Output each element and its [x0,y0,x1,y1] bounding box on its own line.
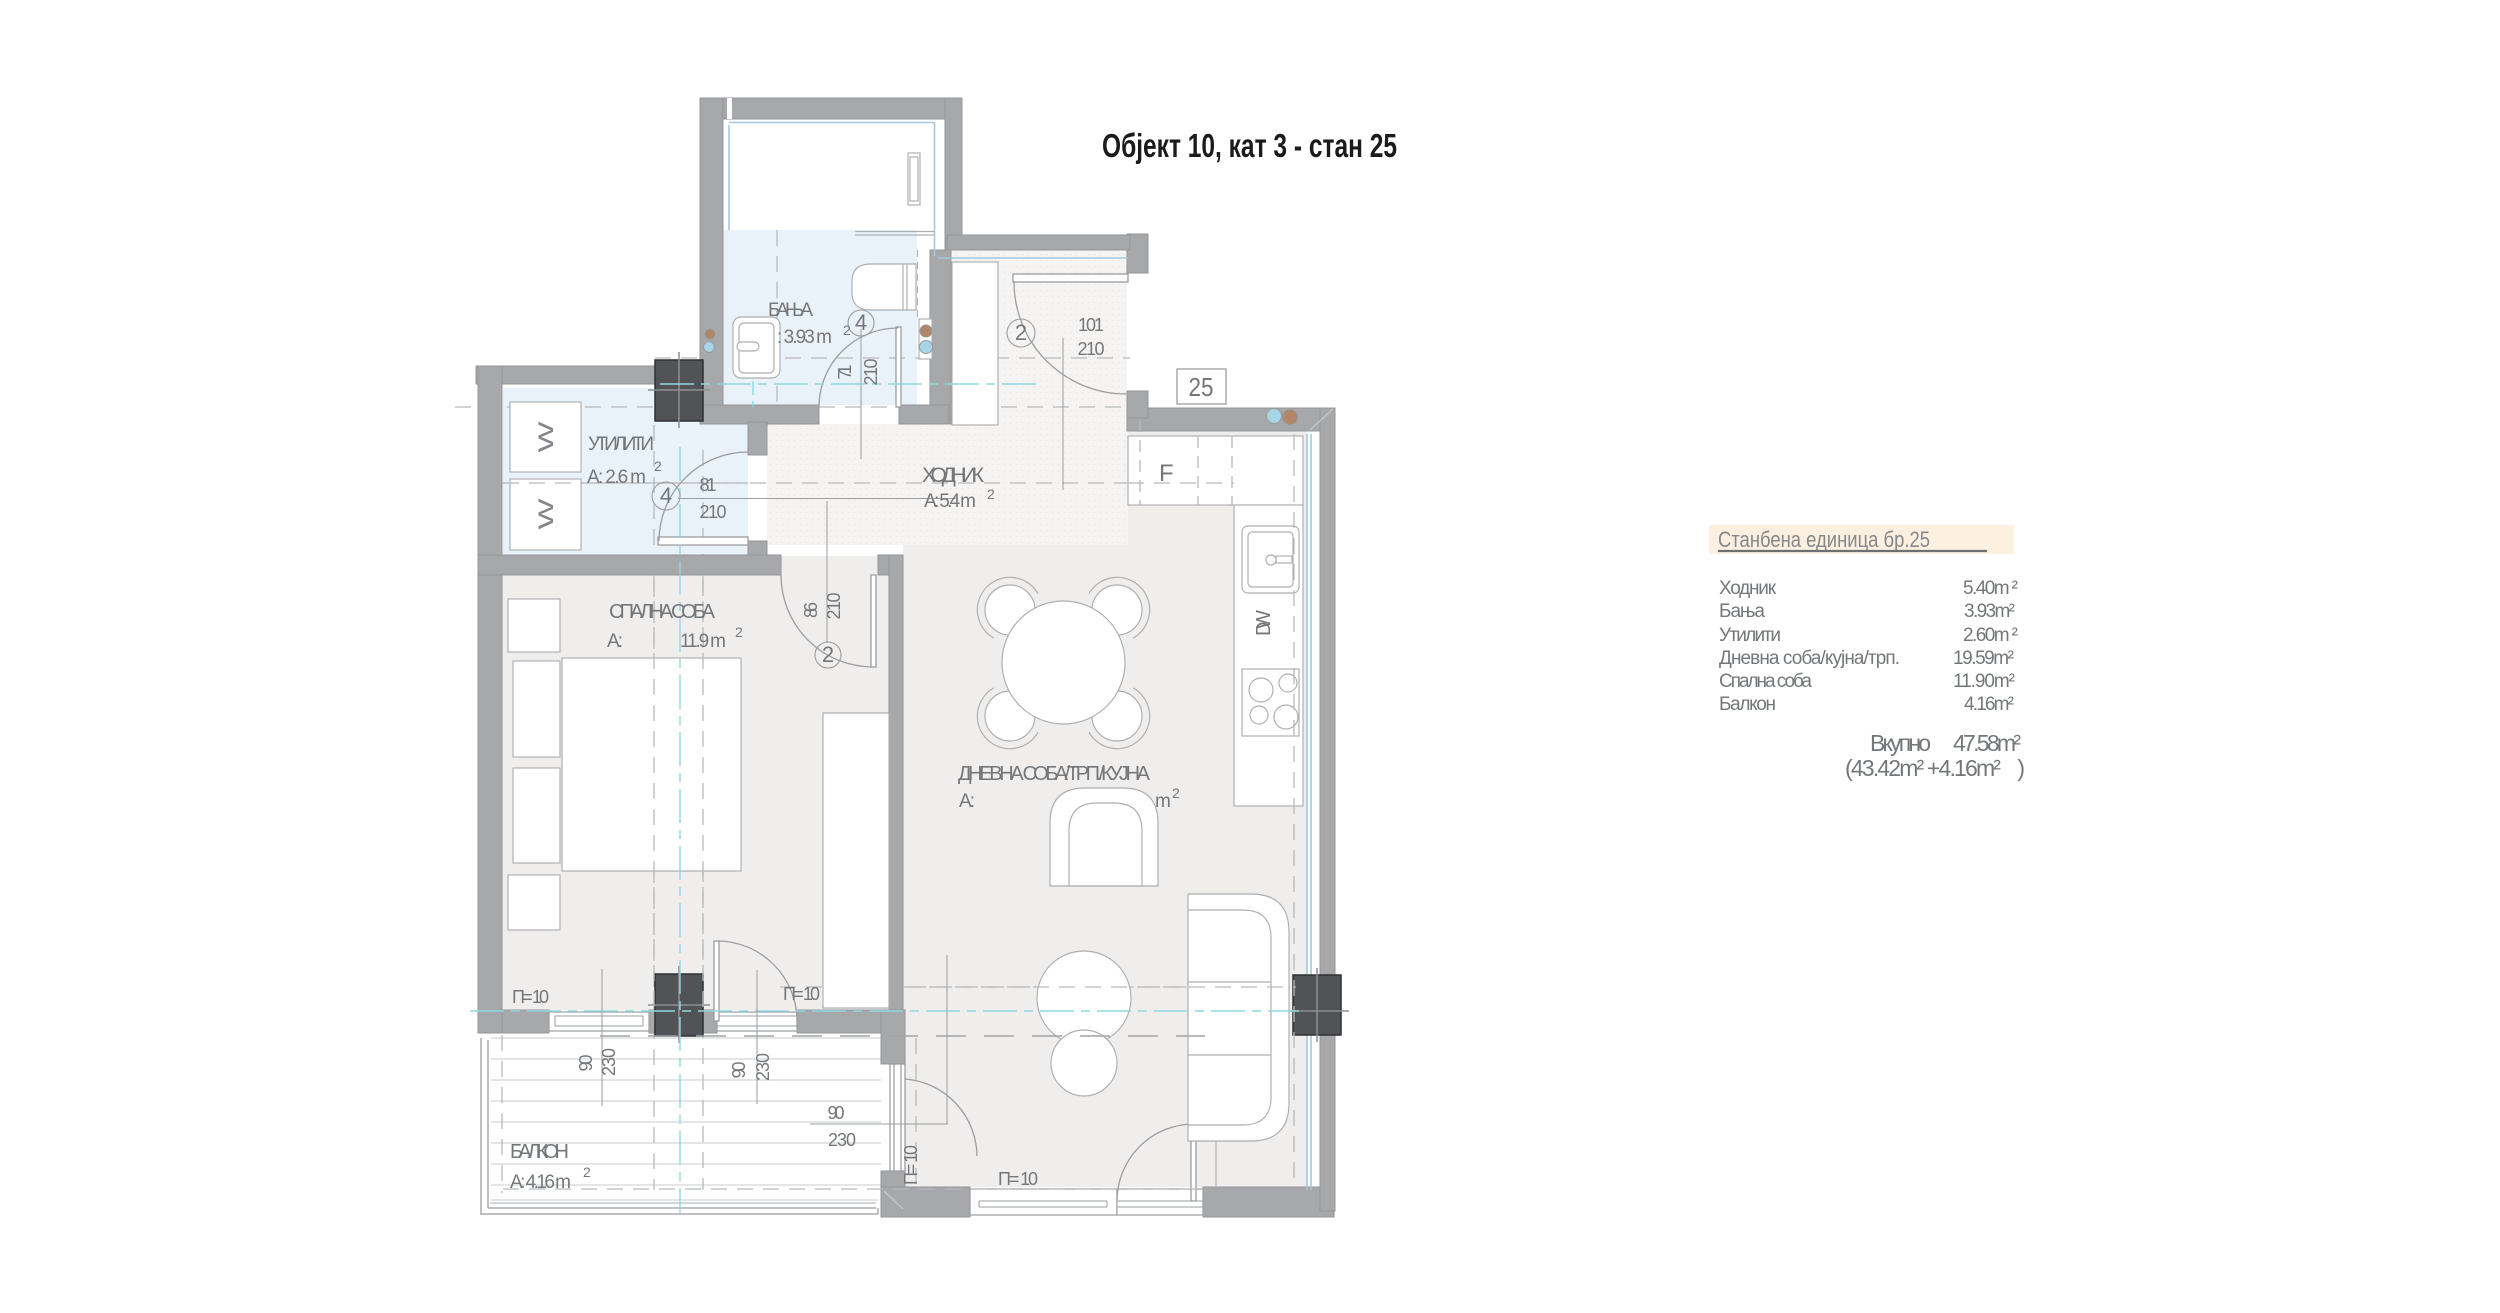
svg-text:DW: DW [1253,610,1275,636]
svg-text:230: 230 [753,1053,773,1081]
svg-text:БАЛКОН: БАЛКОН [510,1141,569,1163]
svg-text:W: W [535,498,558,529]
svg-text:(43.42m² +4.16m² ): (43.42m² +4.16m² ) [1845,755,2025,781]
svg-text:25: 25 [1189,372,1214,402]
svg-text:m: m [1155,791,1171,812]
svg-text:2: 2 [654,458,662,474]
svg-text:П= 10: П= 10 [512,987,549,1007]
svg-text:90: 90 [828,1103,845,1123]
svg-text:А:: А: [607,631,623,652]
svg-text:210: 210 [1078,339,1105,359]
svg-text:А: 2.6 m: А: 2.6 m [587,467,646,488]
svg-text:W: W [535,421,558,452]
svg-text:2: 2 [822,642,834,667]
svg-text:Вкупно: Вкупно [1870,730,1931,756]
svg-text:П= 10: П= 10 [783,984,820,1004]
svg-text:A: 4.16 m: A: 4.16 m [510,1172,571,1193]
svg-text:2: 2 [987,486,995,502]
svg-text:Ходник: Ходник [1719,578,1777,599]
svg-text:СПАЛНА СОБА: СПАЛНА СОБА [609,601,716,623]
svg-text:3.93m²: 3.93m² [1964,601,2015,622]
svg-text:А: 5.4 m: А: 5.4 m [924,491,976,512]
svg-text:230: 230 [599,1048,619,1076]
svg-text:230: 230 [828,1130,856,1150]
svg-text:210: 210 [824,593,844,620]
svg-text:19.59m²: 19.59m² [1953,648,2014,669]
svg-text:11.90m²: 11.90m² [1953,671,2015,692]
svg-text:Објект 10, кат 3 - стан 25: Објект 10, кат 3 - стан 25 [1102,127,1397,164]
svg-text:90: 90 [576,1055,596,1072]
svg-text:81: 81 [700,475,717,495]
svg-text:БАЊА: БАЊА [768,300,813,321]
svg-text:5.40m ²: 5.40m ² [1963,578,2018,599]
svg-text:2: 2 [1015,320,1027,345]
svg-text:86: 86 [801,602,821,618]
svg-text:2: 2 [1172,785,1180,801]
svg-text:УТИЛИТИ: УТИЛИТИ [588,434,654,455]
svg-text:Дневна соба/кујна/трп.: Дневна соба/кујна/трп. [1719,648,1900,669]
svg-text:47.58m²: 47.58m² [1953,730,2021,756]
svg-text:2: 2 [843,322,851,338]
svg-text:ХОДНИК: ХОДНИК [922,464,985,487]
svg-text:90: 90 [729,1062,749,1079]
svg-text:Спална соба: Спална соба [1719,671,1812,692]
svg-text:4.16m²: 4.16m² [1964,694,2014,715]
svg-text:А:: А: [959,791,975,812]
svg-text:Утилити: Утилити [1719,625,1781,646]
svg-text:71: 71 [835,365,855,380]
svg-text:210: 210 [861,359,881,386]
svg-text:: 3.93 m: : 3.93 m [777,327,832,348]
svg-text:Станбена единица бр.25: Станбена единица бр.25 [1718,527,1930,552]
svg-text:ДНЕВНА СОБА/ТРП./КУЈНА: ДНЕВНА СОБА/ТРП./КУЈНА [958,763,1151,785]
svg-text:2: 2 [735,624,743,640]
svg-text:2: 2 [583,1164,591,1180]
svg-text:F: F [1159,460,1174,487]
svg-text:П= 10: П= 10 [998,1169,1038,1189]
svg-text:2.60m ²: 2.60m ² [1963,625,2018,646]
svg-text:210: 210 [700,502,727,522]
svg-text:П= 10: П= 10 [901,1145,921,1185]
svg-text:Балкон: Балкон [1719,694,1776,715]
svg-text:11.9 m: 11.9 m [680,631,726,652]
svg-text:4: 4 [855,310,867,335]
svg-text:Бања: Бања [1719,601,1765,622]
svg-text:101: 101 [1078,315,1104,335]
svg-text:4: 4 [660,483,672,508]
